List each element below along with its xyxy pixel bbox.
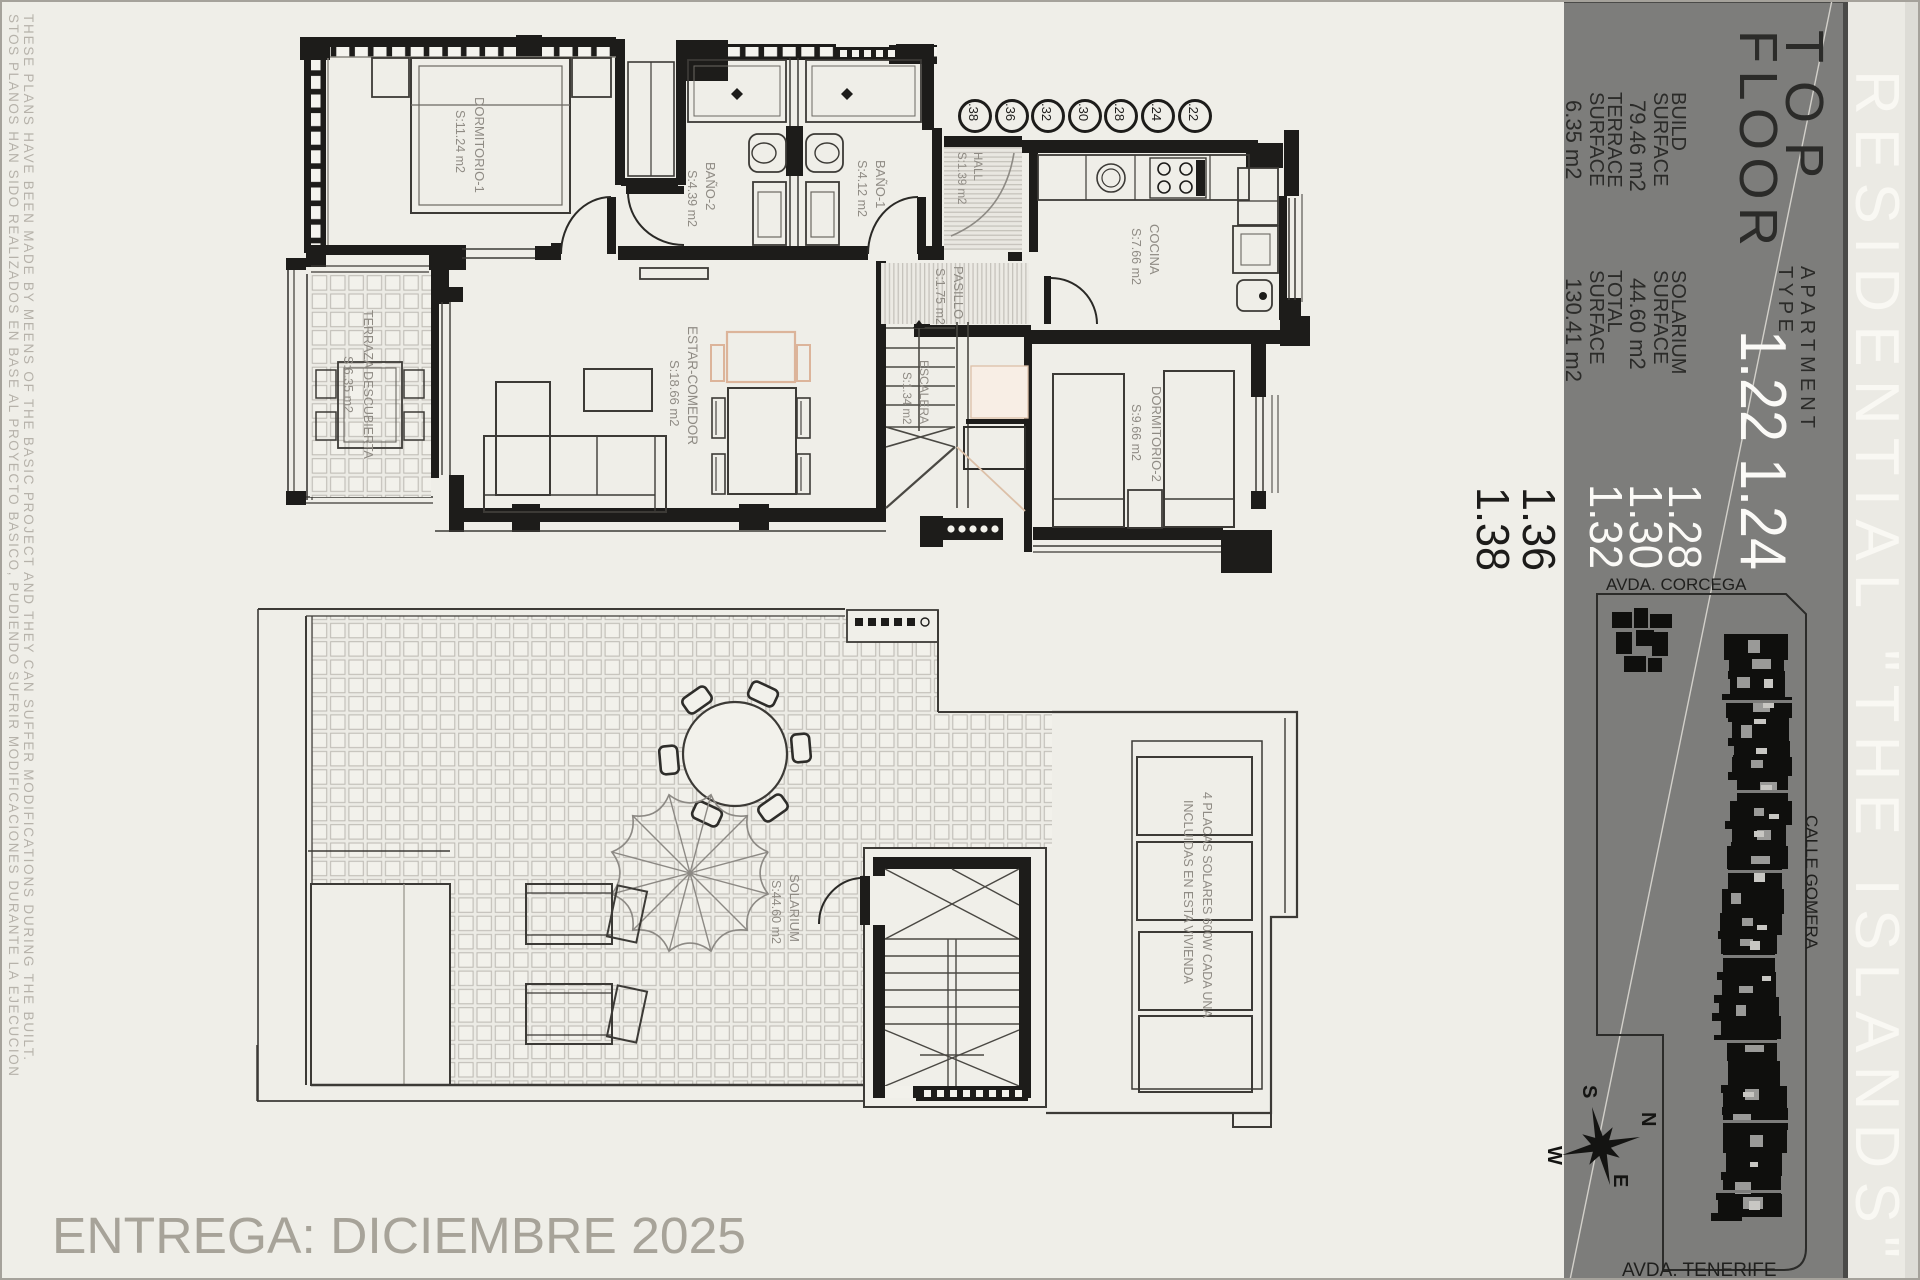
svg-text:SOLARIUM: SOLARIUM bbox=[787, 874, 802, 942]
svg-text:1.22 1.24: 1.22 1.24 bbox=[1727, 330, 1800, 570]
svg-text:DORMITORIO-1: DORMITORIO-1 bbox=[472, 97, 487, 193]
svg-text:1.36: 1.36 bbox=[1513, 487, 1565, 571]
svg-text:S:1.34 m2: S:1.34 m2 bbox=[900, 372, 912, 424]
svg-text:S:44.60 m2: S:44.60 m2 bbox=[769, 880, 783, 944]
svg-text:STOS PLANOS HAN SIDO REALIZADO: STOS PLANOS HAN SIDO REALIZADOS EN BASE … bbox=[6, 14, 21, 1076]
svg-text:S:9.66 m2: S:9.66 m2 bbox=[1129, 404, 1143, 461]
svg-text:44.60 m2: 44.60 m2 bbox=[1625, 278, 1650, 370]
svg-text:.28: .28 bbox=[1112, 103, 1127, 121]
svg-text:130.41 m2: 130.41 m2 bbox=[1561, 278, 1586, 382]
svg-text:BAÑO-1: BAÑO-1 bbox=[873, 160, 888, 208]
svg-text:HALL: HALL bbox=[971, 152, 983, 181]
svg-text:S:7.66 m2: S:7.66 m2 bbox=[1129, 228, 1143, 285]
svg-text:.32: .32 bbox=[1039, 103, 1054, 121]
svg-text:TERRAZA DESCUBIERTA: TERRAZA DESCUBIERTA bbox=[361, 310, 375, 460]
svg-text:.24: .24 bbox=[1149, 103, 1164, 121]
svg-text:S:4.39 m2: S:4.39 m2 bbox=[685, 170, 699, 227]
svg-text:4 PLACAS SOLARES 600W CADA UNA: 4 PLACAS SOLARES 600W CADA UNA bbox=[1200, 792, 1214, 1018]
svg-text:S:4.12 m2: S:4.12 m2 bbox=[855, 160, 869, 217]
svg-text:ESCALERA: ESCALERA bbox=[917, 360, 931, 424]
svg-text:DORMITORIO-2: DORMITORIO-2 bbox=[1149, 386, 1164, 482]
svg-text:S: S bbox=[1578, 1085, 1600, 1098]
svg-text:SURFACE: SURFACE bbox=[1585, 270, 1607, 364]
svg-text:E: E bbox=[1609, 1174, 1631, 1187]
svg-text:RESIDENTIAL "THE ISLANDS": RESIDENTIAL "THE ISLANDS" bbox=[1842, 70, 1911, 1260]
svg-text:79.46 m2: 79.46 m2 bbox=[1625, 100, 1650, 192]
svg-text:AVDA. TENERIFE: AVDA. TENERIFE bbox=[1622, 1260, 1777, 1280]
svg-text:.36: .36 bbox=[1003, 103, 1018, 121]
svg-text:SURFACE: SURFACE bbox=[1649, 270, 1671, 364]
svg-text:1.38: 1.38 bbox=[1467, 487, 1519, 571]
svg-text:FLOOR: FLOOR bbox=[1728, 30, 1788, 246]
svg-text:6.35 m2: 6.35 m2 bbox=[1561, 100, 1586, 180]
svg-text:.22: .22 bbox=[1186, 103, 1201, 121]
svg-text:S:1.39 m2: S:1.39 m2 bbox=[955, 152, 967, 204]
svg-text:W: W bbox=[1543, 1146, 1565, 1165]
svg-text:.38: .38 bbox=[966, 103, 981, 121]
svg-text:S:1.75 m2: S:1.75 m2 bbox=[933, 268, 947, 325]
svg-text:S:6.35 m2: S:6.35 m2 bbox=[341, 356, 355, 413]
svg-text:N: N bbox=[1637, 1112, 1659, 1126]
svg-text:PASILLO: PASILLO bbox=[951, 266, 966, 319]
svg-text:.30: .30 bbox=[1076, 103, 1091, 121]
svg-text:1.32: 1.32 bbox=[1580, 484, 1632, 569]
svg-text:SURFACE: SURFACE bbox=[1649, 92, 1671, 186]
svg-text:S:11.24 m2: S:11.24 m2 bbox=[453, 110, 467, 173]
svg-text:S:18.66 m2: S:18.66 m2 bbox=[667, 360, 682, 427]
svg-text:BAÑO-2: BAÑO-2 bbox=[703, 162, 718, 210]
svg-text:INCLUIDAS EN ESTA VIVIENDA: INCLUIDAS EN ESTA VIVIENDA bbox=[1181, 800, 1195, 985]
svg-text:CALLE GOMERA: CALLE GOMERA bbox=[1802, 815, 1821, 950]
svg-text:SURFACE: SURFACE bbox=[1585, 92, 1607, 186]
svg-text:COCINA: COCINA bbox=[1147, 224, 1162, 275]
svg-text:ENTREGA: DICIEMBRE 2025: ENTREGA: DICIEMBRE 2025 bbox=[52, 1207, 746, 1264]
svg-text:ESTAR-COMEDOR: ESTAR-COMEDOR bbox=[685, 326, 700, 445]
svg-text:AVDA. CORCEGA: AVDA. CORCEGA bbox=[1606, 575, 1747, 594]
